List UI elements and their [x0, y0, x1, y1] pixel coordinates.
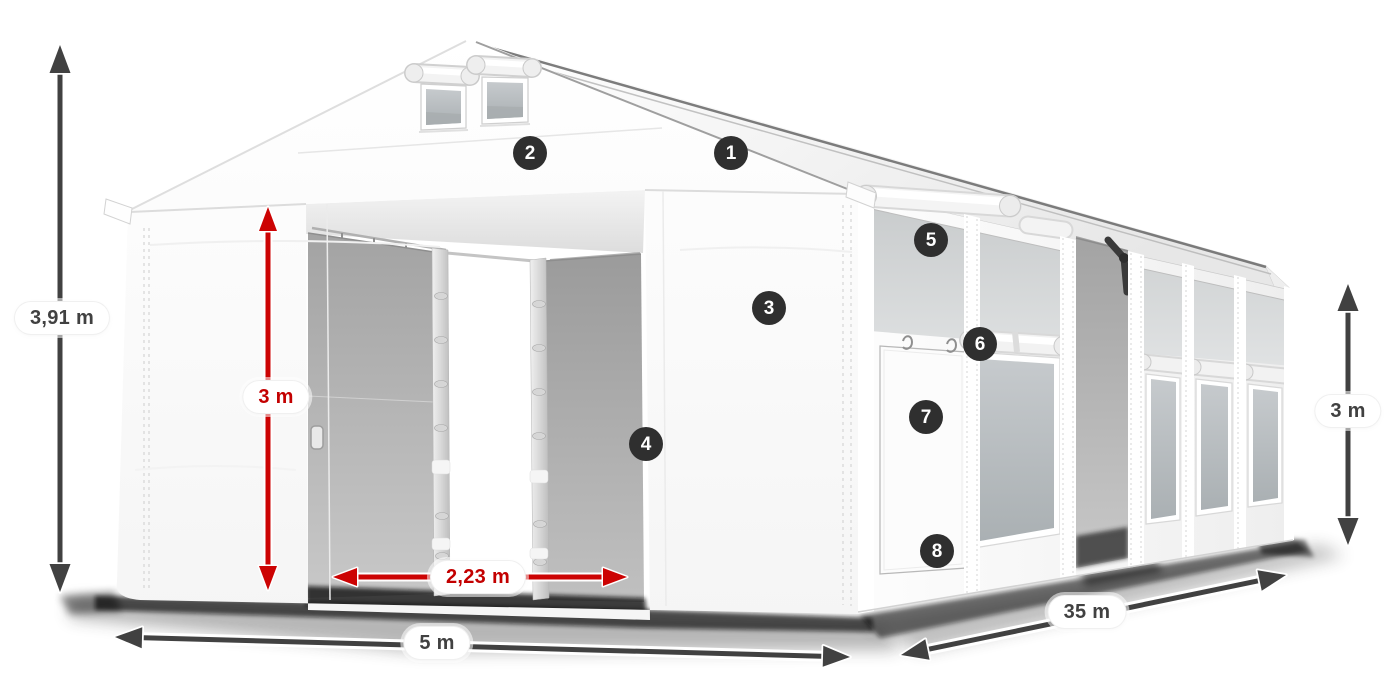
side-entrance-gap [1076, 236, 1129, 568]
entrance-pole-left [432, 248, 450, 596]
dimension-label-entrance-height: 3 m [243, 381, 308, 413]
dimension-label-side-height: 3 m [1315, 395, 1380, 427]
hotspot-marker-4[interactable]: 4 [629, 427, 663, 461]
hotspot-marker-7[interactable]: 7 [909, 400, 943, 434]
entrance-handle [311, 426, 323, 449]
tent-dimension-diagram: 3,91 m 3 m 2,23 m 5 m 35 m 3 m 1 2 3 4 5… [0, 0, 1400, 700]
hotspot-marker-1[interactable]: 1 [714, 136, 748, 170]
hotspot-marker-3[interactable]: 3 [752, 291, 786, 325]
eave-corner-left [104, 199, 132, 224]
dimension-label-front-width: 5 m [404, 627, 469, 659]
dimension-label-entrance-width: 2,23 m [431, 561, 525, 593]
side-door [880, 336, 966, 574]
interior-mesh-right [545, 254, 644, 602]
hotspot-marker-8[interactable]: 8 [920, 534, 954, 568]
tent-illustration [0, 0, 1400, 700]
entrance-interior [306, 190, 647, 616]
entrance-pole-right [530, 258, 549, 600]
dimension-label-total-height: 3,91 m [15, 302, 109, 334]
hotspot-marker-5[interactable]: 5 [914, 223, 948, 257]
hotspot-marker-6[interactable]: 6 [963, 327, 997, 361]
dimension-label-side-length: 35 m [1049, 596, 1126, 628]
hotspot-marker-2[interactable]: 2 [513, 136, 547, 170]
